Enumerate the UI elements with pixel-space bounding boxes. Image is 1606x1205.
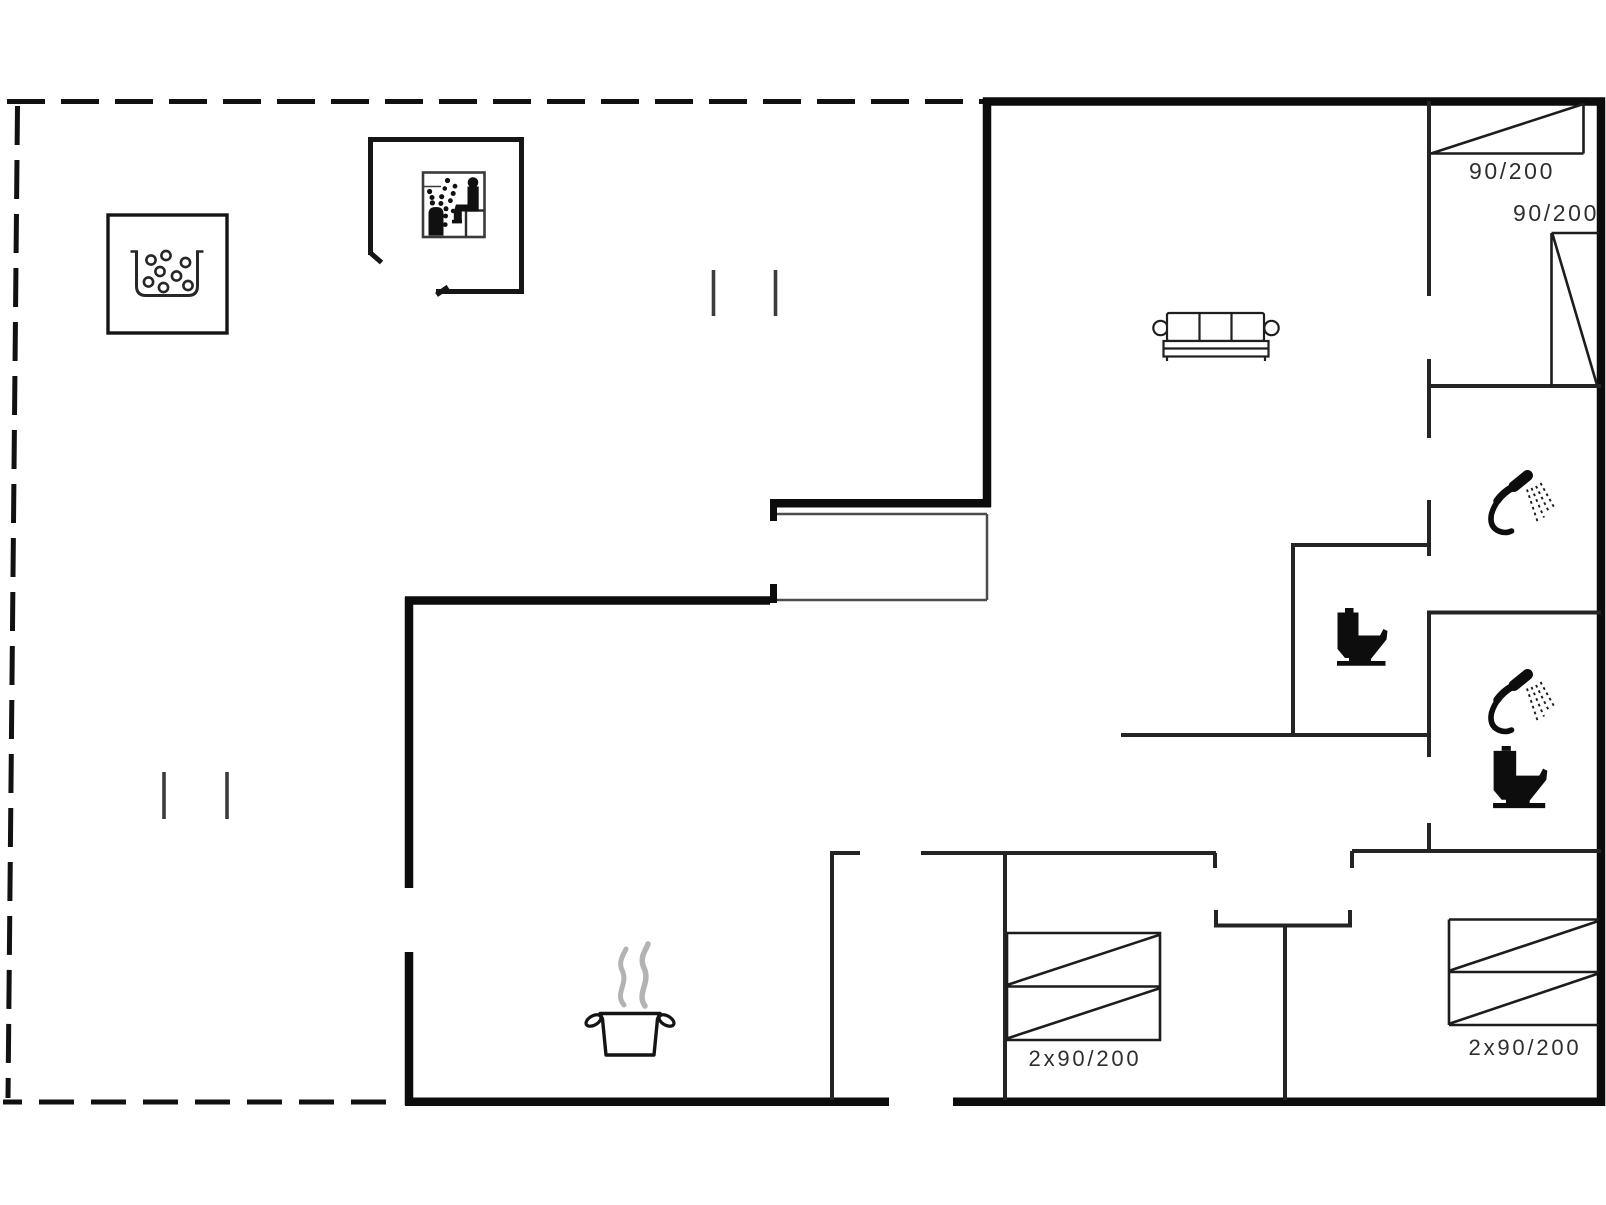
- svg-text:2x90/200: 2x90/200: [1469, 1035, 1582, 1060]
- svg-text:90/200: 90/200: [1469, 158, 1555, 184]
- svg-text:90/200: 90/200: [1513, 200, 1599, 226]
- svg-text:2x90/200: 2x90/200: [1029, 1046, 1142, 1071]
